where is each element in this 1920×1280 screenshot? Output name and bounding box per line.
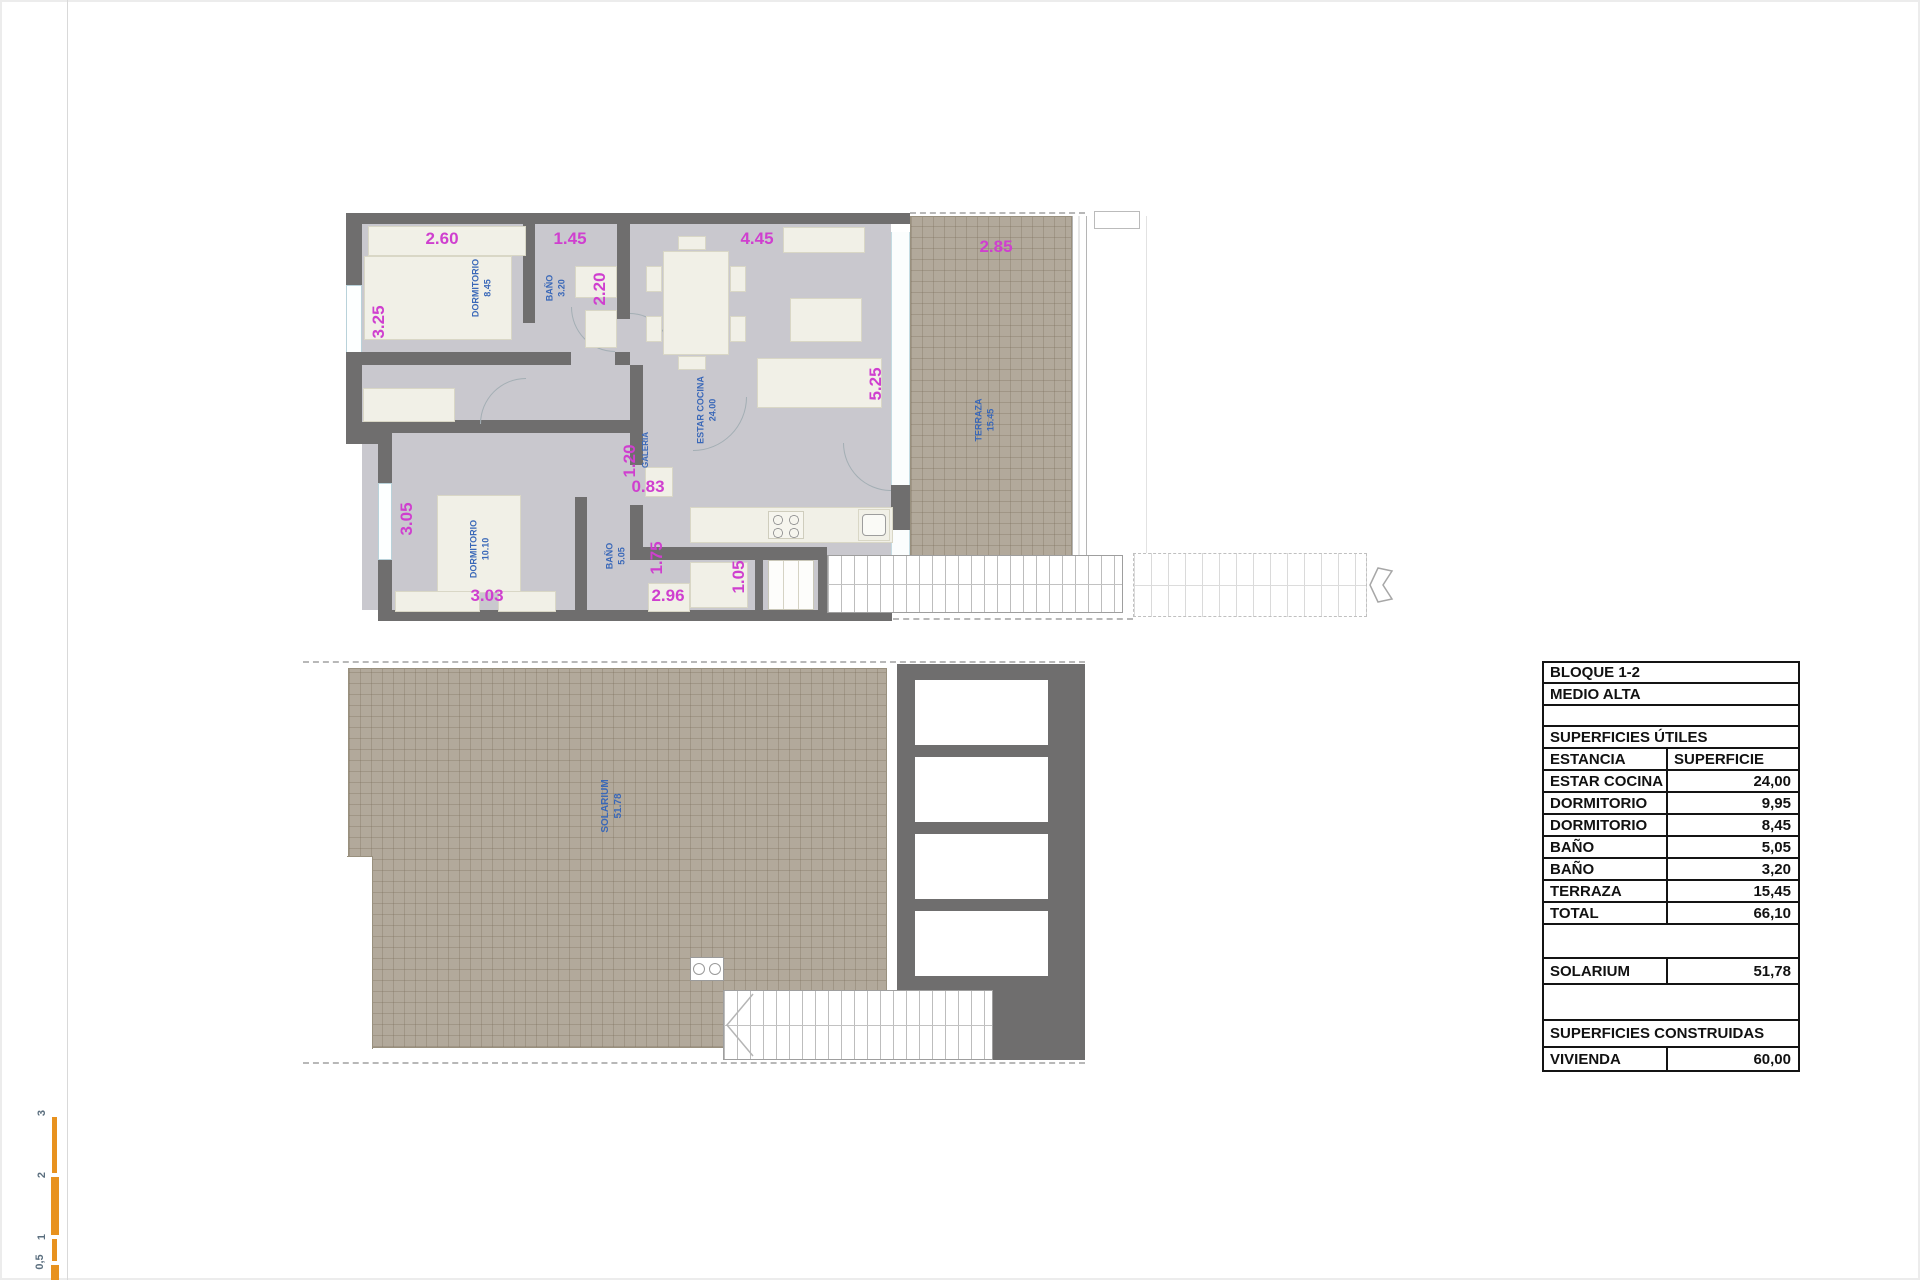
dining-chair bbox=[678, 356, 706, 370]
room-label-bano1: BAÑO3.20 bbox=[544, 275, 567, 302]
dim-145: 1.45 bbox=[553, 229, 586, 249]
dining-table bbox=[663, 251, 729, 355]
dim-525: 5.25 bbox=[866, 367, 886, 400]
dim-285: 2.85 bbox=[979, 237, 1012, 257]
wall-left-lower-a bbox=[378, 444, 392, 483]
sink-basin bbox=[862, 514, 886, 536]
wall-dorm2-bath2 bbox=[575, 497, 587, 610]
stair-start-chevron bbox=[725, 992, 755, 1058]
scale-bar-segment bbox=[52, 1117, 57, 1173]
wall-galeria-b bbox=[630, 505, 643, 560]
dim-325: 3.25 bbox=[369, 305, 389, 338]
toilet-bath1 bbox=[585, 310, 617, 348]
stairs-upper-plan bbox=[827, 555, 1123, 613]
terrace-pillar-box bbox=[1094, 211, 1140, 229]
room-label-dormitorio2: DORMITORIO10.10 bbox=[468, 520, 491, 578]
core-opening-2 bbox=[915, 757, 1048, 822]
solarium-bottom-dashed bbox=[303, 1062, 1085, 1064]
bench-bedroom1 bbox=[363, 388, 455, 422]
dim-220: 2.20 bbox=[590, 272, 610, 305]
solarium-notch bbox=[347, 856, 373, 1049]
wall-closet-divider1 bbox=[755, 560, 763, 610]
dining-chair bbox=[678, 236, 706, 250]
table-row: TOTAL66,10 bbox=[1542, 901, 1800, 925]
scale-bar-segment bbox=[52, 1239, 57, 1261]
stove bbox=[768, 511, 804, 539]
bottom-dashed-extension bbox=[893, 618, 1133, 620]
room-label-galeria: GALERIA bbox=[641, 432, 651, 468]
dining-chair bbox=[646, 316, 662, 342]
scale-label-3: 3 bbox=[36, 1110, 48, 1116]
drawing-sheet: 2.60 1.45 4.45 2.85 3.25 2.20 5.25 1.20 … bbox=[0, 0, 1920, 1280]
table-row bbox=[1542, 923, 1800, 959]
dim-120: 1.20 bbox=[620, 444, 640, 477]
terrace-top-dashed bbox=[910, 212, 1085, 214]
sofa bbox=[757, 358, 882, 408]
wall-mid-horizontal-b bbox=[615, 352, 630, 365]
dresser-bedroom2b bbox=[498, 591, 556, 612]
terrace-glazing-upper bbox=[891, 232, 910, 485]
table-row: BLOQUE 1-2 bbox=[1542, 661, 1800, 684]
dining-chair bbox=[646, 266, 662, 292]
wall-closet-divider2 bbox=[818, 560, 827, 610]
scale-label-05: 0,5 bbox=[34, 1254, 46, 1269]
scale-label-2: 2 bbox=[36, 1172, 48, 1178]
solarium-top-dashed bbox=[303, 661, 1085, 663]
skylight-circle bbox=[709, 963, 721, 975]
dining-chair bbox=[730, 266, 746, 292]
wall-top bbox=[346, 213, 910, 224]
solarium-skylight bbox=[690, 957, 724, 981]
table-row: DORMITORIO8,45 bbox=[1542, 813, 1800, 837]
room-label-bano2: BAÑO5.05 bbox=[604, 543, 627, 570]
table-row bbox=[1542, 704, 1800, 727]
area-summary-table: BLOQUE 1-2 MEDIO ALTA SUPERFICIES ÚTILES… bbox=[1542, 663, 1800, 1072]
kitchen-sink bbox=[858, 509, 890, 541]
dresser-bedroom2 bbox=[395, 591, 480, 612]
room-label-dormitorio1: DORMITORIO8.45 bbox=[470, 259, 493, 317]
skylight-circle bbox=[693, 963, 705, 975]
core-opening-1 bbox=[915, 680, 1048, 745]
wall-left-upper-a bbox=[346, 224, 362, 285]
coffee-table bbox=[790, 298, 862, 342]
dim-445: 4.45 bbox=[740, 229, 773, 249]
room-label-solarium: SOLARIUM51.78 bbox=[599, 779, 625, 832]
sheet-margin-line bbox=[67, 0, 68, 1280]
closet-2 bbox=[768, 560, 814, 610]
scale-bar-segment bbox=[51, 1265, 59, 1280]
table-row: SUPERFICIES ÚTILES bbox=[1542, 725, 1800, 749]
scale-label-1: 1 bbox=[36, 1234, 48, 1240]
dim-305: 3.05 bbox=[397, 502, 417, 535]
table-row: ESTAR COCINA24,00 bbox=[1542, 769, 1800, 793]
window-bedroom2 bbox=[378, 483, 392, 560]
table-row: TERRAZA15,45 bbox=[1542, 879, 1800, 903]
room-label-estar-cocina: ESTAR COCINA24.00 bbox=[695, 376, 718, 444]
table-row: MEDIO ALTA bbox=[1542, 682, 1800, 706]
wall-mid-horizontal-a bbox=[346, 352, 571, 365]
wall-bottomstrip-top bbox=[643, 547, 827, 560]
dim-105: 1.05 bbox=[729, 560, 749, 593]
table-row: BAÑO5,05 bbox=[1542, 835, 1800, 859]
scale-bar-segment bbox=[51, 1177, 59, 1235]
wall-bath1-living bbox=[617, 224, 630, 319]
table-header-row: ESTANCIASUPERFICIE bbox=[1542, 747, 1800, 771]
table-row: VIVIENDA60,00 bbox=[1542, 1046, 1800, 1072]
core-opening-3 bbox=[915, 834, 1048, 899]
core-opening-4 bbox=[915, 911, 1048, 976]
table-row bbox=[1542, 983, 1800, 1021]
table-row: SUPERFICIES CONSTRUIDAS bbox=[1542, 1019, 1800, 1048]
table-row: BAÑO3,20 bbox=[1542, 857, 1800, 881]
dim-260: 2.60 bbox=[425, 229, 458, 249]
dim-083: 0.83 bbox=[631, 477, 664, 497]
dim-303: 3.03 bbox=[470, 586, 503, 606]
sideboard bbox=[783, 227, 865, 253]
stairs-continuation-dashed bbox=[1133, 553, 1367, 617]
dim-175: 1.75 bbox=[647, 541, 667, 574]
dining-chair bbox=[730, 316, 746, 342]
terrace-railing bbox=[1072, 216, 1087, 613]
stairs-lower-plan bbox=[723, 990, 993, 1060]
table-row: DORMITORIO9,95 bbox=[1542, 791, 1800, 815]
dim-296: 2.96 bbox=[651, 586, 684, 606]
stair-direction-arrow bbox=[1368, 566, 1394, 604]
terrace-glazing-pillar bbox=[891, 485, 910, 530]
room-label-terraza: TERRAZA15.45 bbox=[973, 399, 996, 442]
table-row: SOLARIUM51,78 bbox=[1542, 957, 1800, 985]
window-bedroom1 bbox=[346, 285, 362, 357]
